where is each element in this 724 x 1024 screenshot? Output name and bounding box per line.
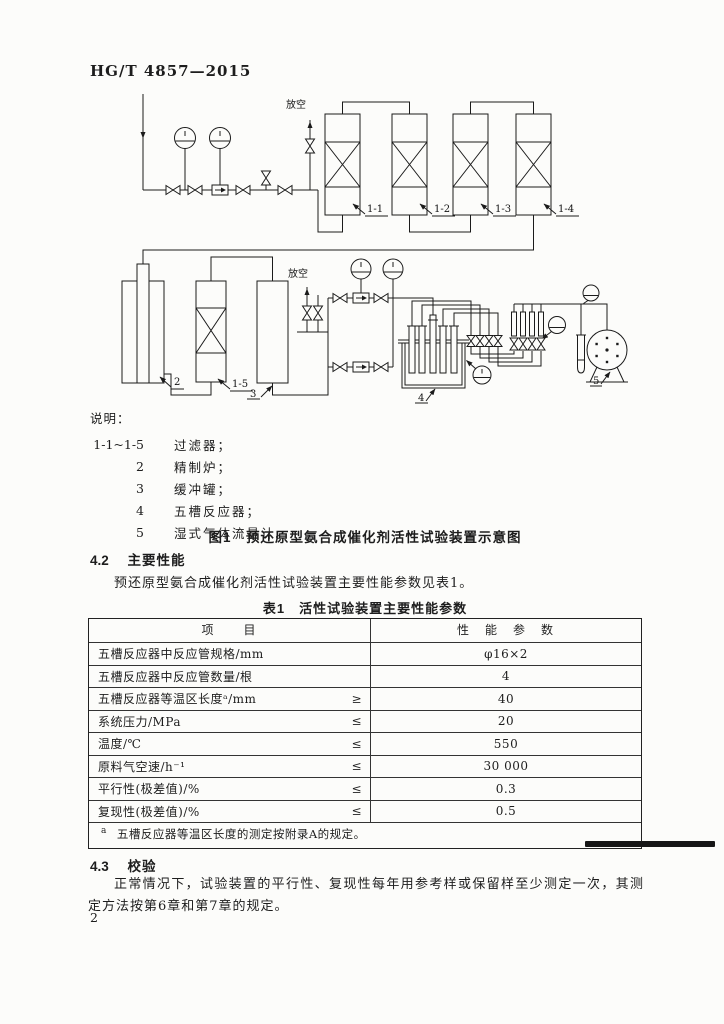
legend-item: 4 五槽反应器； <box>90 499 290 521</box>
item-cell: 系统压力/MPa <box>98 713 181 730</box>
equipment-label-1-5: 1-5 <box>232 379 248 390</box>
table-row: 原料气空速/h⁻¹≤ 30 000 <box>89 756 641 779</box>
document-page: HG/T 4857—2015 <box>0 0 724 1024</box>
section-number: 4.2 <box>90 553 109 568</box>
relation-symbol: ≤ <box>351 737 362 751</box>
equipment-label-1-3: 1-3 <box>495 204 511 215</box>
equipment-label-1-1: 1-1 <box>367 204 383 215</box>
item-cell: 五槽反应器中反应管规格/mm <box>98 645 264 662</box>
filter-vessel-1-4 <box>516 114 551 215</box>
relation-symbol: ≤ <box>351 804 362 818</box>
value-cell: 40 <box>371 688 641 710</box>
vent-label: 放空 <box>286 98 306 111</box>
wet-gas-flowmeter-icon <box>587 330 627 370</box>
gauge-icon <box>583 285 599 304</box>
item-cell: 五槽反应器等温区长度ᵃ/mm <box>98 690 256 707</box>
flow-regulator-icon <box>353 293 369 303</box>
relation-symbol: ≥ <box>351 692 362 706</box>
value-cell: 0.5 <box>371 801 641 823</box>
table-row: 五槽反应器中反应管数量/根 4 <box>89 666 641 689</box>
page-number: 2 <box>90 910 98 925</box>
temperature-gauge-icon <box>467 361 492 385</box>
relation-symbol: ≤ <box>351 759 362 773</box>
section-4-3-body: 正常情况下，试验装置的平行性、复现性每年用参考样或保留样至少测定一次，其测定方法… <box>88 874 644 918</box>
legend-label: 五槽反应器； <box>174 501 261 520</box>
gauge-icon <box>542 317 566 340</box>
legend-key: 1-1~1-5 <box>90 437 144 452</box>
table-row: 复现性(极差值)/%≤ 0.5 <box>89 801 641 824</box>
apparatus-diagram: 放空 放空 1-1 1-2 1-3 1-4 2 1-5 3 4 5 <box>85 88 670 410</box>
table-row: 五槽反应器中反应管规格/mm φ16×2 <box>89 643 641 666</box>
footnote-text: 五槽反应器等温区长度的测定按附录A的规定。 <box>117 827 366 841</box>
table-row: 系统压力/MPa≤ 20 <box>89 711 641 734</box>
legend-item: 2 精制炉； <box>90 455 290 477</box>
item-cell: 五槽反应器中反应管数量/根 <box>98 668 253 685</box>
table-caption: 表1 活性试验装置主要性能参数 <box>85 598 645 617</box>
section-heading-4-3: 4.3 校验 <box>90 855 157 875</box>
value-cell: 20 <box>371 711 641 733</box>
legend-key: 4 <box>90 503 144 518</box>
equipment <box>122 114 627 403</box>
performance-table: 项 目 性 能 参 数 五槽反应器中反应管规格/mm φ16×2 五槽反应器中反… <box>88 618 642 849</box>
relation-symbol: ≤ <box>351 782 362 796</box>
equipment-label-1-2: 1-2 <box>434 204 450 215</box>
table-row: 温度/℃≤ 550 <box>89 733 641 756</box>
item-cell: 复现性(极差值)/% <box>98 803 200 820</box>
diagram-legend: 说明： 1-1~1-5 过滤器； 2 精制炉； 3 缓冲罐； 4 五槽反应器； … <box>90 408 290 543</box>
filter-vessel-1-2 <box>392 114 427 215</box>
equipment-label-3: 3 <box>250 389 256 400</box>
scan-artifact <box>585 841 715 847</box>
pressure-gauge-icon <box>351 259 371 279</box>
filter-vessel-1-5 <box>196 281 226 382</box>
column-header: 性 能 参 数 <box>371 619 641 642</box>
rotameters <box>512 312 544 336</box>
value-cell: φ16×2 <box>371 643 641 665</box>
legend-label: 过滤器； <box>174 435 232 454</box>
pressure-gauge-icon <box>175 128 196 149</box>
figure-caption: 图1 预还原型氨合成催化剂活性试验装置示意图 <box>85 526 645 546</box>
value-cell: 0.3 <box>371 778 641 800</box>
vent-label: 放空 <box>288 267 308 280</box>
relation-symbol: ≤ <box>351 714 362 728</box>
buffer-tank <box>257 281 288 383</box>
filter-vessel-1-3 <box>453 114 488 215</box>
legend-label: 精制炉； <box>174 457 232 476</box>
column-header: 项 目 <box>89 619 371 642</box>
refining-furnace <box>122 264 164 383</box>
five-cell-reactor <box>398 315 469 388</box>
legend-item: 3 缓冲罐； <box>90 477 290 499</box>
table-row: 平行性(极差值)/%≤ 0.3 <box>89 778 641 801</box>
section-title: 主要性能 <box>128 553 186 568</box>
section-number: 4.3 <box>90 859 109 874</box>
flow-regulator-icon <box>353 362 369 372</box>
legend-label: 缓冲罐； <box>174 479 232 498</box>
standard-code: HG/T 4857—2015 <box>90 62 251 80</box>
equipment-label-4: 4 <box>418 393 424 404</box>
legend-key: 2 <box>90 459 144 474</box>
section-title: 校验 <box>128 859 157 874</box>
equipment-label-2: 2 <box>174 377 180 388</box>
equipment-label-5: 5 <box>593 376 599 387</box>
value-cell: 4 <box>371 666 641 688</box>
legend-item: 1-1~1-5 过滤器； <box>90 433 290 455</box>
item-cell: 温度/℃ <box>98 735 141 752</box>
section-4-2-body: 预还原型氨合成催化剂活性试验装置主要性能参数见表1。 <box>88 573 644 595</box>
test-tube <box>576 335 586 373</box>
legend-title: 说明： <box>90 408 290 427</box>
value-cell: 550 <box>371 733 641 755</box>
value-cell: 30 000 <box>371 756 641 778</box>
filter-vessel-1-1 <box>325 114 360 215</box>
table-header-row: 项 目 性 能 参 数 <box>89 619 641 643</box>
flow-regulator-icon <box>212 185 228 195</box>
table-footnote: a五槽反应器等温区长度的测定按附录A的规定。 <box>89 823 641 848</box>
pressure-gauge-icon <box>383 259 403 279</box>
item-cell: 平行性(极差值)/% <box>98 780 200 797</box>
equipment-label-1-4: 1-4 <box>558 204 574 215</box>
table-row: 五槽反应器等温区长度ᵃ/mm≥ 40 <box>89 688 641 711</box>
footnote-marker: a <box>101 826 107 836</box>
item-cell: 原料气空速/h⁻¹ <box>98 758 185 775</box>
legend-key: 3 <box>90 481 144 496</box>
pressure-gauge-icon <box>210 128 231 149</box>
section-heading-4-2: 4.2 主要性能 <box>90 549 186 569</box>
